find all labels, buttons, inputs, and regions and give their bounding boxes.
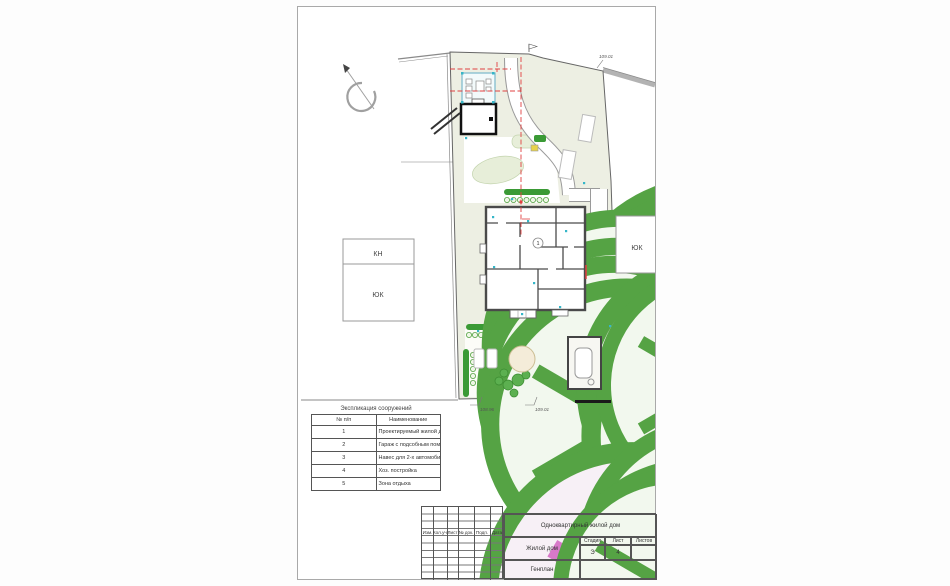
rev-col-izm: Изм. bbox=[422, 529, 433, 536]
row-name: Хоз. постройка bbox=[376, 465, 441, 478]
rev-col-data: Дата bbox=[490, 529, 504, 536]
rev-col-doc: № док. bbox=[458, 529, 474, 536]
title-block-revision-grid: Изм. Кол.уч. Лист № док. Подп. Дата bbox=[421, 506, 503, 579]
north-arrow-icon bbox=[343, 64, 375, 111]
row-num: 5 bbox=[312, 478, 377, 491]
house-number: 1 bbox=[536, 241, 539, 247]
drawing-sheet: 1 bbox=[297, 6, 656, 580]
rev-col-podp: Подп. bbox=[474, 529, 490, 536]
sheet-label: Лист bbox=[605, 537, 631, 545]
flag-mark bbox=[529, 44, 537, 52]
explication-title: Экспликация сооружений bbox=[311, 406, 441, 412]
sheet-value: 4 bbox=[605, 545, 631, 560]
project-name: Одноквартирный жилой дом bbox=[504, 514, 657, 537]
block-label-yuk: ЮК bbox=[372, 292, 384, 299]
rev-col-kol: Кол.уч. bbox=[433, 529, 447, 536]
title-block-main: Одноквартирный жилой дом Жилой дом Стади… bbox=[503, 513, 656, 579]
table-row: 1 Проектируемый жилой дом bbox=[312, 426, 441, 439]
neighbor-block-right: ЮК bbox=[616, 216, 655, 273]
organization-cell bbox=[580, 560, 657, 580]
drawing-viewer-background: 1 bbox=[0, 0, 950, 586]
row-name: Зона отдыха bbox=[376, 478, 441, 491]
sheets-value bbox=[631, 545, 657, 560]
block-label-yuk-right: ЮК bbox=[631, 245, 643, 252]
row-name: Проектируемый жилой дом bbox=[376, 426, 441, 439]
row-num: 2 bbox=[312, 439, 377, 452]
col-header-num: № п/п bbox=[312, 415, 377, 426]
title-block: Изм. Кол.уч. Лист № док. Подп. Дата Одно… bbox=[421, 506, 656, 579]
row-name: Навес для 2-х автомобилей bbox=[376, 452, 441, 465]
object-name: Жилой дом bbox=[504, 537, 580, 560]
elevation-bottom-right: 109.01 bbox=[535, 407, 549, 412]
sheets-label: Листов bbox=[631, 537, 657, 545]
rev-col-list: Лист bbox=[447, 529, 458, 536]
row-num: 3 bbox=[312, 452, 377, 465]
stage-value: Э bbox=[580, 545, 605, 560]
table-row: 5 Зона отдыха bbox=[312, 478, 441, 491]
table-header-row: № п/п Наименование bbox=[312, 415, 441, 426]
elevation-bottom-left: 108.96 bbox=[480, 407, 494, 412]
row-num: 4 bbox=[312, 465, 377, 478]
table-row: 4 Хоз. постройка bbox=[312, 465, 441, 478]
table-row: 3 Навес для 2-х автомобилей bbox=[312, 452, 441, 465]
drawing-name: Генплан bbox=[504, 560, 580, 580]
col-header-name: Наименование bbox=[376, 415, 441, 426]
main-house: 1 bbox=[480, 207, 586, 318]
table-row: 2 Гараж с подсобным пом. bbox=[312, 439, 441, 452]
stage-label: Стадия bbox=[580, 537, 605, 545]
explication-table: № п/п Наименование 1 Проектируемый жилой… bbox=[311, 414, 441, 491]
row-num: 1 bbox=[312, 426, 377, 439]
block-label-kn: КН bbox=[373, 251, 382, 258]
site-plan: 1 bbox=[298, 7, 655, 579]
neighbor-block-left: КН ЮК bbox=[343, 239, 414, 321]
explication: Экспликация сооружений № п/п Наименовани… bbox=[311, 406, 441, 491]
elevation-top-right: 109.01 bbox=[599, 54, 613, 59]
row-name: Гараж с подсобным пом. bbox=[376, 439, 441, 452]
